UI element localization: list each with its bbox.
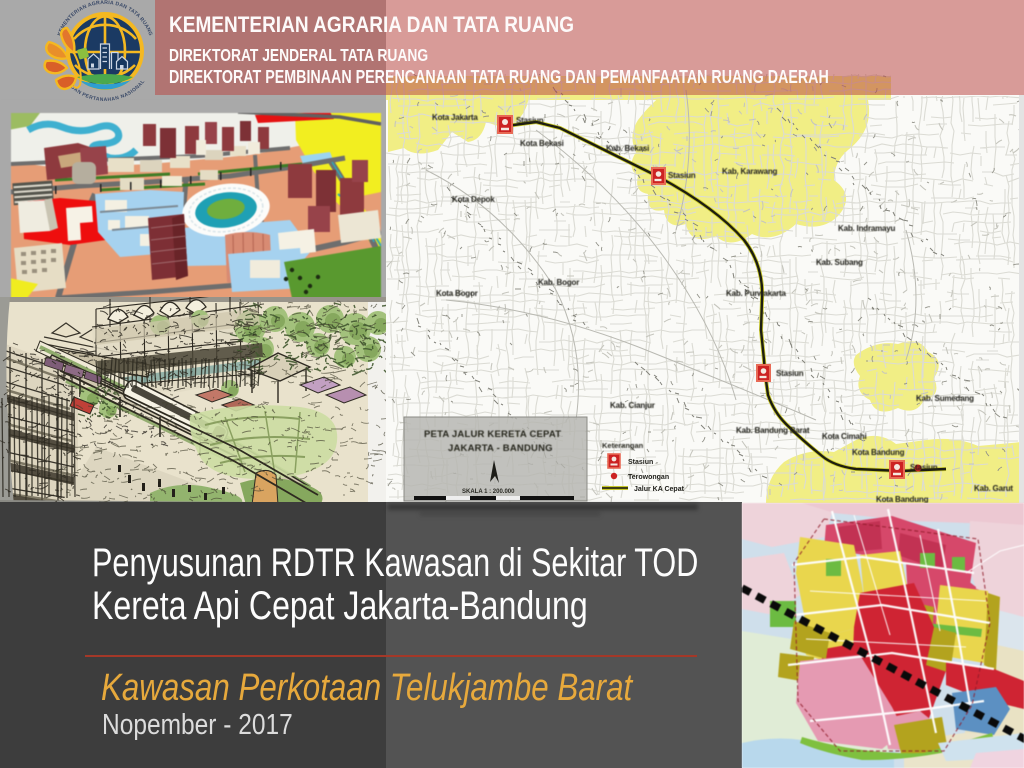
- svg-text:Stasiun: Stasiun: [516, 116, 544, 125]
- svg-text:Kab. Garut: Kab. Garut: [974, 484, 1013, 493]
- svg-text:SKALA 1 : 200.000: SKALA 1 : 200.000: [462, 489, 515, 495]
- svg-text:Keterangan: Keterangan: [602, 441, 644, 450]
- svg-text:Kota Depok: Kota Depok: [452, 195, 495, 204]
- svg-text:Stasiun: Stasiun: [910, 463, 938, 472]
- svg-text:Kota Bandung: Kota Bandung: [876, 495, 929, 503]
- svg-text:Kab. Cianjur: Kab. Cianjur: [610, 401, 655, 410]
- svg-text:Jalur KA Cepat: Jalur KA Cepat: [634, 486, 685, 493]
- svg-text:Kab. Karawang: Kab. Karawang: [722, 167, 778, 176]
- svg-text:Kota Cimahi: Kota Cimahi: [822, 432, 866, 441]
- svg-text:Kota Jakarta: Kota Jakarta: [432, 113, 478, 122]
- svg-text:PETA JALUR KERETA CEPAT: PETA JALUR KERETA CEPAT: [424, 429, 561, 440]
- svg-text:JAKARTA - BANDUNG: JAKARTA - BANDUNG: [448, 443, 553, 454]
- svg-text:Kab. Subang: Kab. Subang: [816, 258, 863, 267]
- svg-text:Kab. Bekasi: Kab. Bekasi: [606, 144, 649, 153]
- svg-text:Stasiun: Stasiun: [776, 369, 804, 378]
- svg-text:Kota Bandung: Kota Bandung: [852, 448, 905, 457]
- svg-text:Kota Bogor: Kota Bogor: [436, 289, 478, 298]
- svg-text:Kab. Bogor: Kab. Bogor: [538, 278, 579, 287]
- svg-text:Kota Bekasi: Kota Bekasi: [520, 139, 564, 148]
- svg-text:Terowongan: Terowongan: [628, 474, 669, 481]
- svg-text:Kab. Bandung Barat: Kab. Bandung Barat: [736, 426, 810, 435]
- svg-text:Stasiun: Stasiun: [628, 459, 653, 466]
- svg-text:Kab. Purwakarta: Kab. Purwakarta: [726, 289, 786, 298]
- svg-text:Kab. Indramayu: Kab. Indramayu: [838, 224, 896, 233]
- svg-text:Kab. Sumedang: Kab. Sumedang: [916, 394, 974, 403]
- svg-text:Stasiun: Stasiun: [668, 171, 696, 180]
